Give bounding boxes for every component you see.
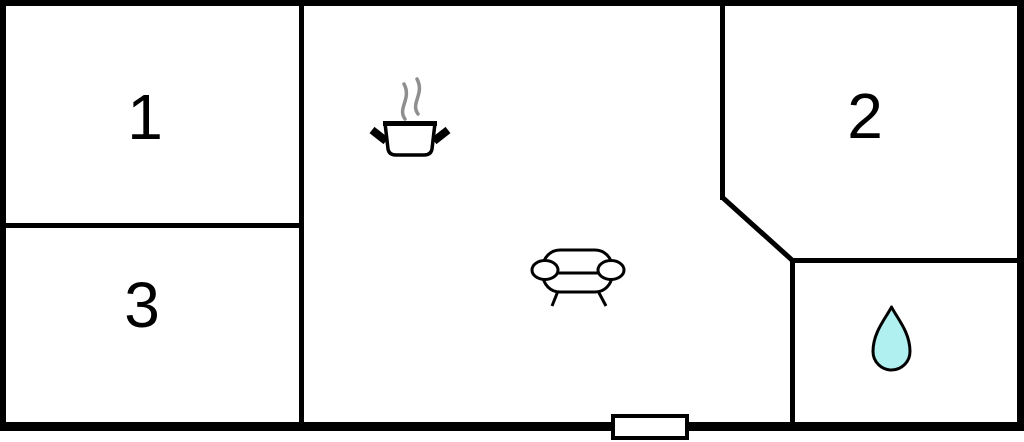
cooking-pot-icon (372, 79, 448, 155)
pot-handle-right (434, 130, 448, 141)
sofa-icon (532, 250, 624, 306)
wall-bathroom-top (790, 258, 1017, 263)
outer-walls (0, 0, 1024, 431)
entrance-door (613, 416, 687, 438)
sofa-leg-right (598, 291, 606, 306)
room-label-1: 1 (127, 85, 163, 149)
pot-handle-left (372, 130, 386, 141)
water-drop-icon (873, 307, 910, 370)
interior-walls (0, 0, 1017, 431)
sofa-armrest-left (532, 261, 558, 280)
wall-room2-diagonal (723, 198, 793, 261)
pot-body (385, 123, 435, 155)
floorplan: 1 2 3 (0, 0, 1024, 442)
outer-wall-top (0, 0, 1024, 6)
steam-icon (403, 79, 420, 119)
wall-left-rooms-vertical (299, 0, 304, 431)
steam-line-right (416, 79, 420, 114)
room-label-2: 2 (847, 84, 883, 148)
floorplan-drawing (0, 0, 1024, 442)
outer-wall-bottom (0, 422, 1024, 431)
steam-line-left (403, 84, 407, 119)
room-label-3: 3 (124, 273, 160, 337)
sofa-armrest-right (598, 261, 624, 280)
wall-bathroom-left (790, 258, 795, 431)
outer-wall-right (1017, 0, 1024, 431)
wall-room2-left (720, 0, 725, 200)
wall-room1-room3-divider (0, 223, 304, 228)
outer-wall-left (0, 0, 6, 431)
